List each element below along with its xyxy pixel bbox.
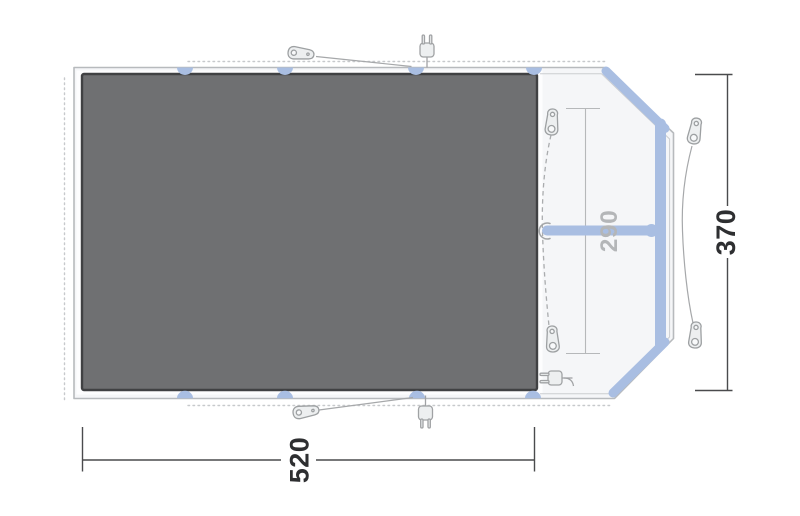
- width-dimension-label: 520: [285, 437, 315, 484]
- guy-line-right-upper: [682, 146, 692, 231]
- guy-line-peg-icon: [688, 322, 702, 349]
- guy-line-peg-icon: [292, 404, 319, 420]
- guy-line-bottom-left: [319, 398, 413, 411]
- guy-line-peg-icon: [287, 46, 314, 61]
- guy-line-right-lower: [683, 231, 694, 323]
- guy-line-top-left: [316, 57, 412, 67]
- depth-dimension-label: 370: [711, 209, 741, 256]
- power-plug-icon: [419, 396, 433, 429]
- tent-floorplan-diagram: 520 370 290: [0, 0, 800, 516]
- toggle-peg-icon: [545, 326, 559, 353]
- inner-depth-dimension-label: 290: [596, 210, 623, 252]
- floorplan-svg: 520 370 290: [0, 0, 800, 516]
- guy-line-peg-icon: [686, 117, 703, 145]
- groundsheet: [82, 74, 537, 390]
- power-plug-icon: [420, 35, 434, 68]
